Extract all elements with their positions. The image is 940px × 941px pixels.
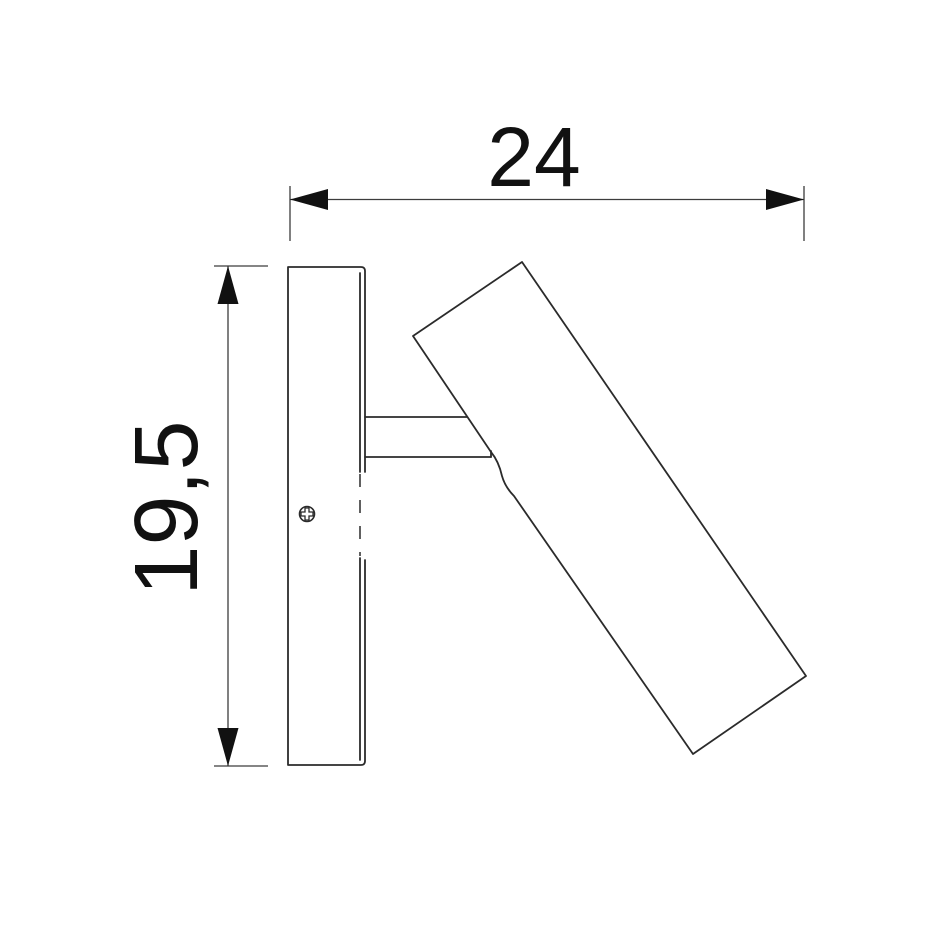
screw-icon <box>300 507 315 522</box>
height-dimension-label: 19,5 <box>117 420 217 595</box>
width-dimension-label: 24 <box>487 110 580 204</box>
technical-drawing-canvas: 24 19,5 <box>0 0 940 941</box>
